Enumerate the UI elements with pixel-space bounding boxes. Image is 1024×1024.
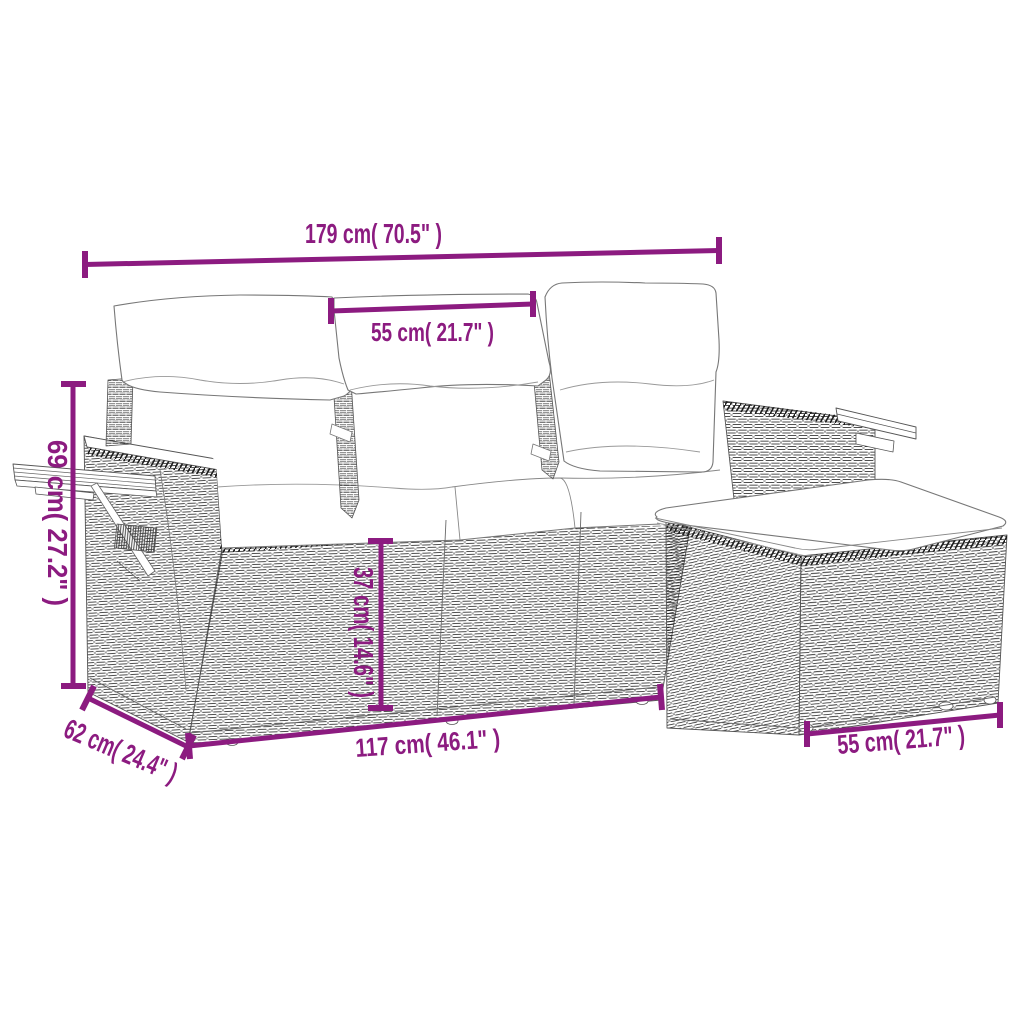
svg-text:69 cm( 27.2" ): 69 cm( 27.2" ) xyxy=(42,440,73,606)
svg-text:37 cm( 14.6" ): 37 cm( 14.6" ) xyxy=(348,567,379,698)
svg-text:55 cm( 21.7" ): 55 cm( 21.7" ) xyxy=(371,317,494,347)
svg-text:179 cm( 70.5" ): 179 cm( 70.5" ) xyxy=(305,218,442,249)
